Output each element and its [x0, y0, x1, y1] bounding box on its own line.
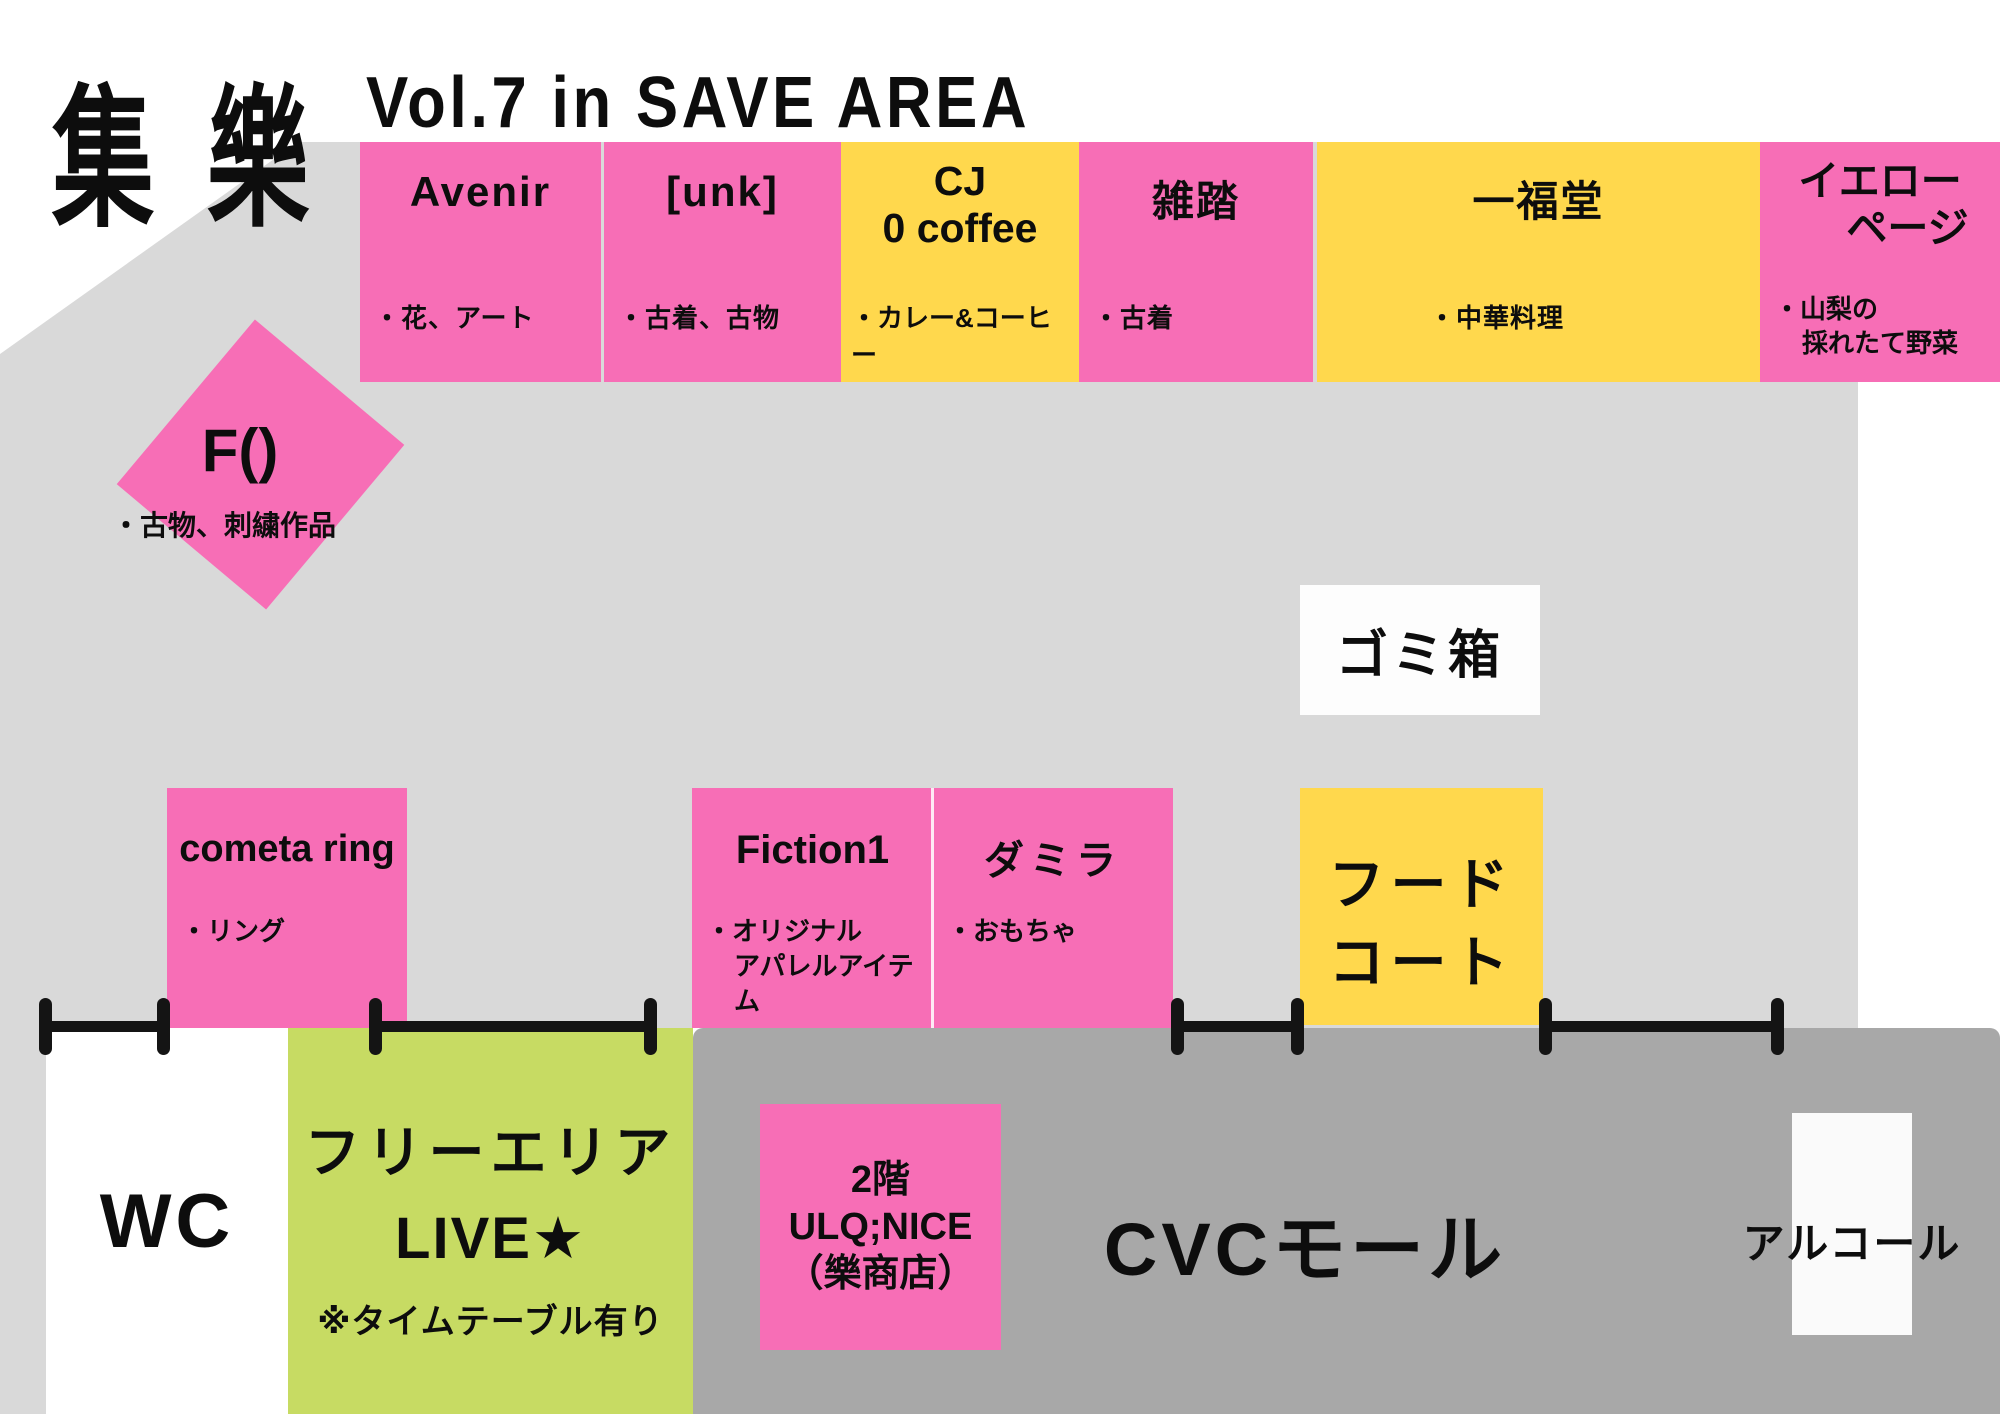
food-court-label: フード コート	[1300, 846, 1543, 1002]
booth-name: Fiction1	[692, 828, 933, 873]
booth-fiction1: Fiction1 ・オリジナル アパレルアイテム	[692, 788, 933, 1028]
wall-segment-3	[1177, 1021, 1297, 1032]
booth-name: CJ 0 coffee	[841, 158, 1079, 252]
page-title: Vol.7 in SAVE AREA	[366, 62, 1030, 144]
booth-damira: ダミラ ・おもちゃ	[933, 788, 1173, 1028]
booth-name-line2: 0 coffee	[841, 205, 1079, 252]
booth-name: Avenir	[360, 168, 601, 216]
food-court-area: フード コート	[1300, 788, 1543, 1025]
alcohol-stand-label: アルコール	[1702, 1210, 2000, 1271]
booth-name-line1: イエロー	[1760, 158, 2000, 205]
food-court-line2: コート	[1300, 924, 1543, 1002]
free-area-line2: LIVE★	[288, 1204, 693, 1272]
wall-tick	[644, 998, 657, 1055]
booth-name: イエロー ページ	[1760, 158, 2000, 252]
wall-segment-2	[375, 1021, 650, 1032]
wall-tick	[1539, 998, 1552, 1055]
event-floor-map: 集 樂 Vol.7 in SAVE AREA Avenir ・花、アート [un…	[0, 0, 2000, 1414]
wc-label-text: WC	[100, 1178, 235, 1265]
wall-segment-1	[45, 1021, 163, 1032]
event-logo: 集 樂	[52, 36, 321, 257]
booth-category-line2: 採れたて野菜	[1774, 326, 1996, 360]
wall-tick	[1171, 998, 1184, 1055]
booth-category: ・古着	[1093, 298, 1307, 335]
booth-zatto: 雑踏 ・古着	[1079, 142, 1313, 382]
wall-tick	[369, 998, 382, 1055]
booth-ulq-nice: 2階 ULQ;NICE （樂商店）	[760, 1104, 1001, 1350]
booth-category: ・花、アート	[374, 298, 595, 335]
booth-name-line2: ページ	[1760, 205, 2000, 252]
booth-category-line2: アパレルアイテム	[706, 949, 929, 1019]
booth-unk: [unk] ・古着、古物	[604, 142, 841, 382]
booth-category: ・中華料理	[1429, 298, 1754, 335]
booth-cj-0-coffee: CJ 0 coffee ・カレー&コーヒー	[841, 142, 1079, 382]
booth-category-line1: ・山梨の	[1774, 292, 1996, 326]
booth-name-line1: CJ	[841, 158, 1079, 205]
booth-category: ・オリジナル アパレルアイテム	[706, 914, 929, 1019]
booth-ichifukudo: 一福堂 ・中華料理	[1317, 142, 1760, 382]
free-area-line1: フリーエリア	[288, 1108, 693, 1189]
booth-cometa-ring: cometa ring ・リング	[167, 788, 407, 1028]
ulq-line3: （樂商店）	[785, 1251, 975, 1298]
wc-room: WC	[46, 1028, 288, 1414]
wall-tick	[1771, 998, 1784, 1055]
booth-category-line1: ・オリジナル	[706, 914, 929, 949]
booth-name: [unk]	[604, 168, 841, 216]
free-area-note: ※タイムテーブル有り	[288, 1294, 693, 1343]
booth-name: cometa ring	[167, 828, 407, 871]
booth-category: ・山梨の 採れたて野菜	[1774, 292, 1996, 360]
booth-avenir: Avenir ・花、アート	[360, 142, 601, 382]
booth-category: ・おもちゃ	[947, 914, 1169, 949]
booth-fiction1-damira: Fiction1 ・オリジナル アパレルアイテム ダミラ ・おもちゃ	[692, 788, 1173, 1028]
booth-f-name: F()	[160, 416, 320, 485]
trash-bin-label: ゴミ箱	[1336, 613, 1504, 688]
wall-tick	[39, 998, 52, 1055]
food-court-line1: フード	[1300, 846, 1543, 924]
wall-segment-4	[1545, 1021, 1777, 1032]
ulq-line2: ULQ;NICE	[789, 1204, 973, 1251]
wall-tick	[1291, 998, 1304, 1055]
booth-f-category: ・古物、刺繍作品	[112, 504, 336, 544]
booth-name: 雑踏	[1079, 168, 1313, 229]
ulq-line1: 2階	[851, 1157, 910, 1204]
booth-category: ・古着、古物	[618, 298, 835, 335]
booth-yellow-page: イエロー ページ ・山梨の 採れたて野菜	[1760, 142, 2000, 382]
booth-name: ダミラ	[933, 828, 1173, 886]
cvc-mall-label: CVCモール	[1045, 1190, 1565, 1297]
booth-name: 一福堂	[1317, 168, 1760, 229]
booth-category: ・カレー&コーヒー	[851, 298, 1073, 372]
trash-bin-box: ゴミ箱	[1300, 585, 1540, 715]
wall-tick	[157, 998, 170, 1055]
free-area-label-block: フリーエリア LIVE★ ※タイムテーブル有り	[288, 1028, 693, 1414]
booth-category: ・リング	[181, 914, 403, 949]
